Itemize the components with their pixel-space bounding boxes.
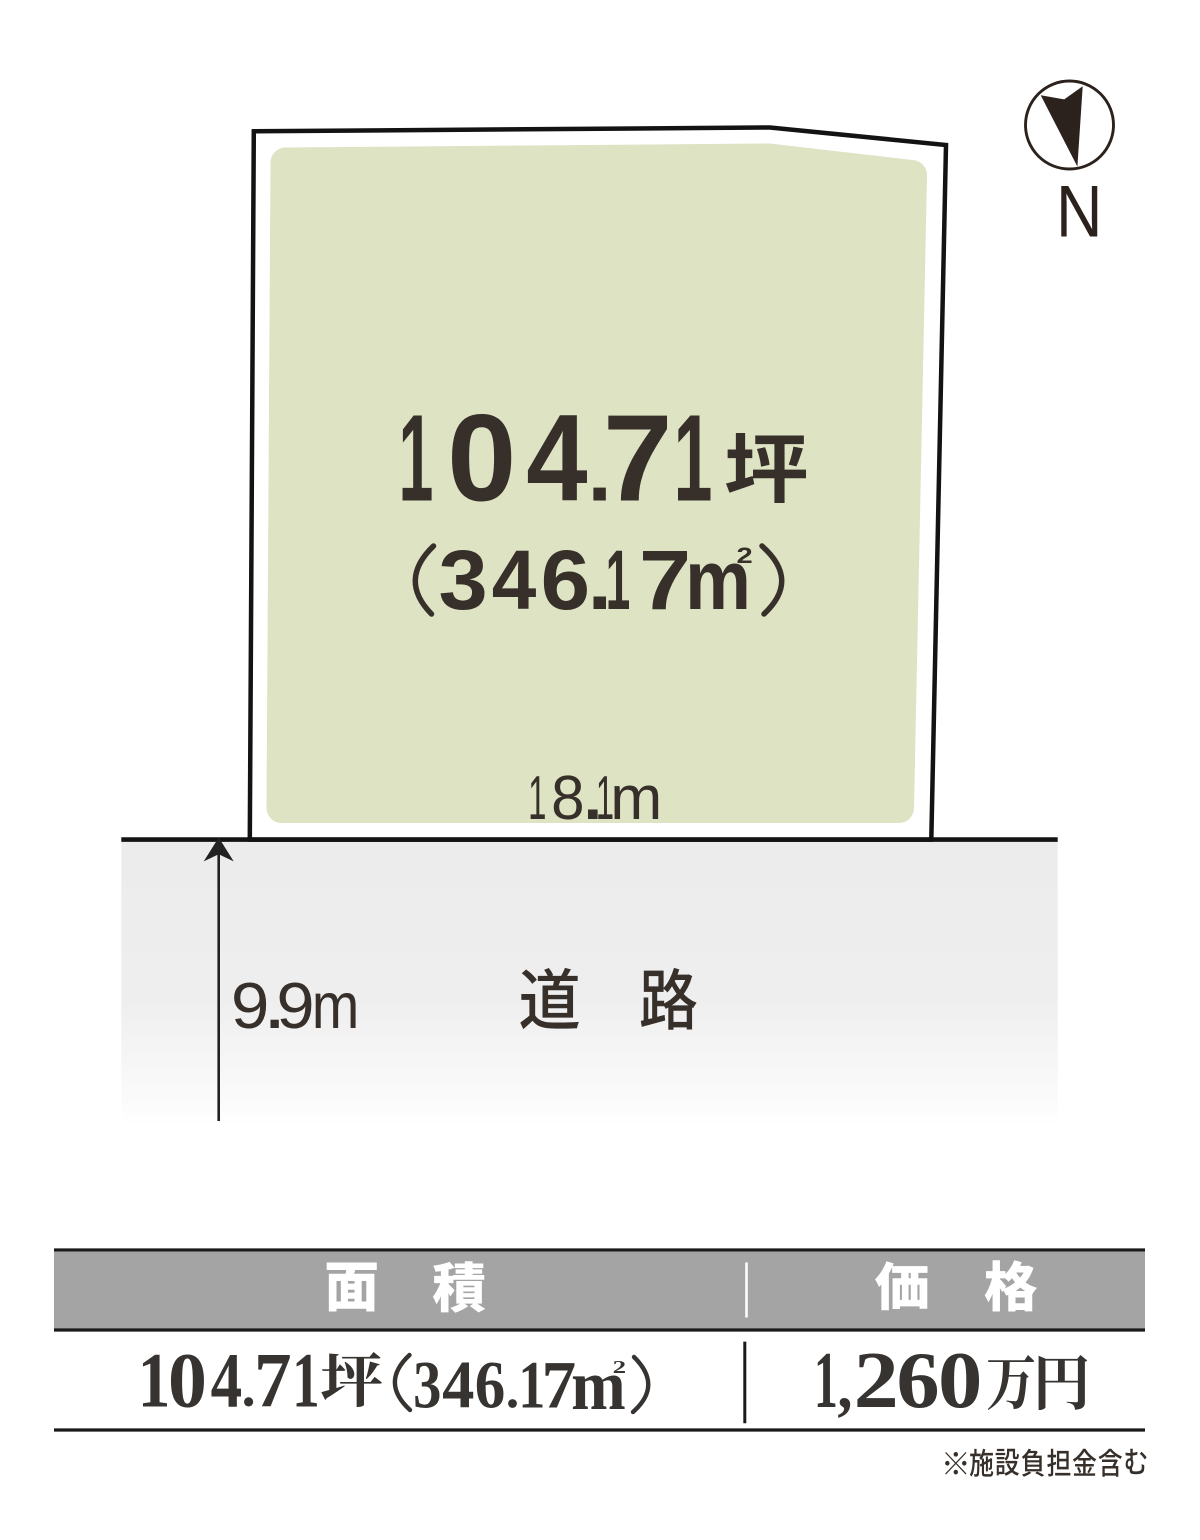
svg-text:2: 2 xyxy=(737,543,753,568)
svg-text:6: 6 xyxy=(475,1347,506,1423)
svg-text:7: 7 xyxy=(603,390,673,528)
svg-text:6: 6 xyxy=(897,1336,940,1425)
svg-text:6: 6 xyxy=(541,533,591,627)
svg-text:0: 0 xyxy=(938,1336,982,1425)
svg-text:4: 4 xyxy=(211,1337,243,1424)
svg-text:m: m xyxy=(610,763,662,833)
svg-text:1: 1 xyxy=(138,1337,171,1424)
svg-text:4: 4 xyxy=(442,1347,474,1423)
svg-text:1: 1 xyxy=(528,763,546,833)
svg-text:m: m xyxy=(312,969,360,1042)
svg-text:N: N xyxy=(1056,171,1103,253)
svg-text:2: 2 xyxy=(854,1336,899,1425)
svg-text:4: 4 xyxy=(492,533,537,627)
svg-text:1: 1 xyxy=(674,390,713,528)
svg-text:1: 1 xyxy=(606,533,631,627)
svg-text:1: 1 xyxy=(292,1337,320,1424)
svg-text:3: 3 xyxy=(439,533,488,627)
svg-text:,: , xyxy=(837,1350,852,1423)
svg-text:8: 8 xyxy=(551,763,584,833)
svg-text:7: 7 xyxy=(639,533,691,627)
svg-text:1: 1 xyxy=(399,390,434,528)
svg-text:9: 9 xyxy=(231,969,270,1042)
svg-text:3: 3 xyxy=(413,1347,441,1423)
svg-text:0: 0 xyxy=(447,390,516,528)
svg-text:7: 7 xyxy=(254,1337,292,1424)
svg-text:9: 9 xyxy=(276,969,314,1042)
svg-text:0: 0 xyxy=(168,1337,207,1424)
svg-text:1: 1 xyxy=(814,1336,838,1425)
svg-text:2: 2 xyxy=(613,1357,627,1377)
svg-text:4: 4 xyxy=(526,390,588,528)
